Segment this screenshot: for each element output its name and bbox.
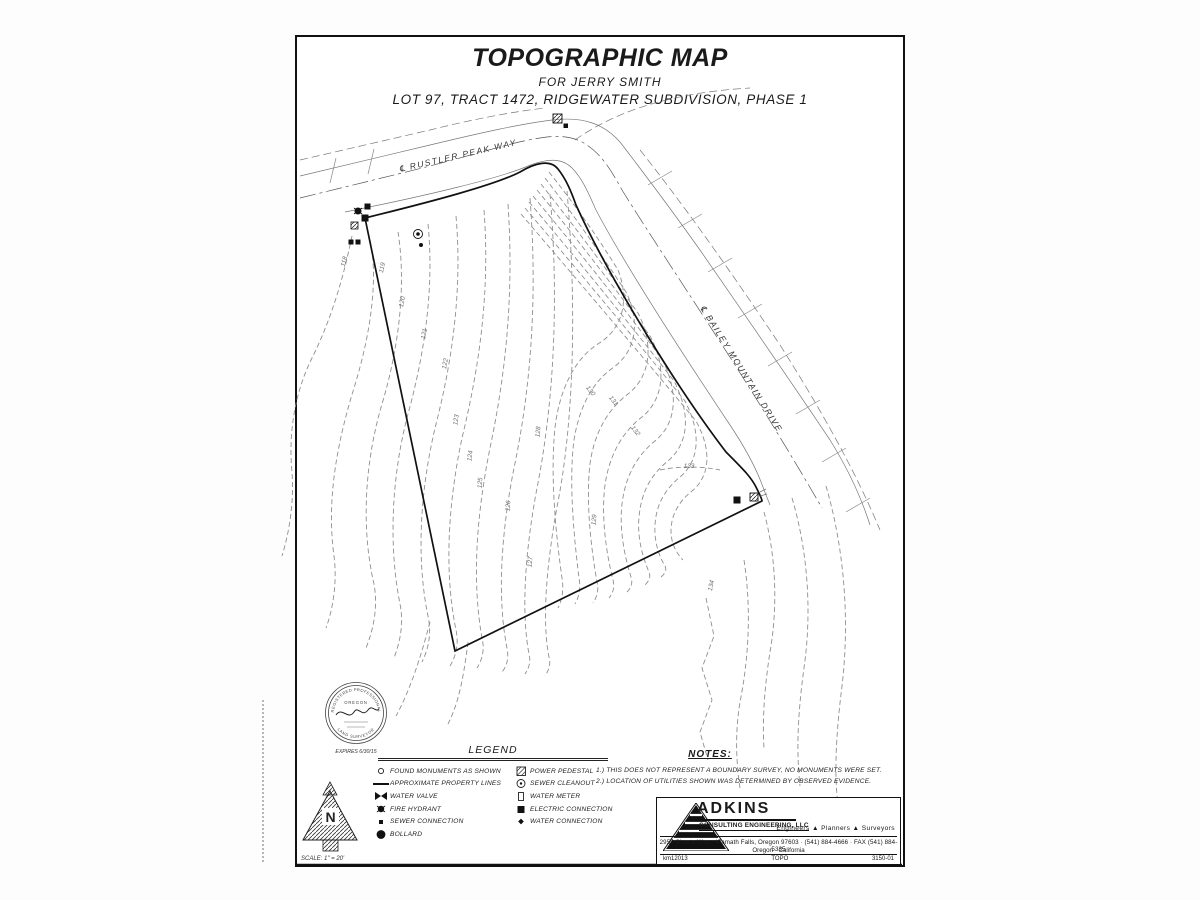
- road-far-edge: [300, 119, 870, 525]
- contour-label: 120: [398, 295, 407, 307]
- sewer-cleanout-icon: [512, 778, 530, 789]
- legend-item-water-connection: WATER CONNECTION: [512, 815, 614, 828]
- stamp-expires: EXPIRES 6/30/15: [335, 749, 376, 755]
- right-of-way-ticks: [330, 149, 870, 512]
- contour-label: 118: [340, 255, 350, 267]
- water-meter-icon: [512, 791, 530, 802]
- firm-sheet-type: TOPO: [771, 856, 788, 862]
- legend-item-electric-connection: ELECTRIC CONNECTION: [512, 803, 614, 816]
- firm-name: ADKINS: [695, 800, 796, 821]
- contour-label: 123: [452, 414, 460, 426]
- firm-job-row: km12013 TOPO 3150-01: [663, 856, 894, 862]
- firm-divider-2: [660, 854, 897, 855]
- notes-title: NOTES:: [596, 749, 824, 760]
- right-of-way-dashed-east: [640, 150, 880, 530]
- electric-connection-icon: [512, 804, 530, 815]
- note-1: 1.) THIS DOES NOT REPRESENT A BOUNDARY S…: [596, 765, 824, 776]
- contour-label: 134: [707, 579, 716, 591]
- property-boundary: [365, 163, 762, 651]
- contour-label: 119: [378, 262, 387, 274]
- sewer-cleanout-symbol: [414, 230, 423, 247]
- water-valve-icon: [372, 791, 390, 801]
- curve-return-dashed: [575, 88, 750, 140]
- legend-item-bollard: BOLLARD: [372, 828, 502, 841]
- legend-item-sewer-connection: SEWER CONNECTION: [372, 815, 502, 828]
- contour-label: 124: [466, 450, 474, 462]
- street-label-rustler: ℄ RUSTLER PEAK WAY: [398, 137, 518, 174]
- contour-labels: 118 119 120 121 122 123 124 125 126 127 …: [340, 255, 716, 591]
- topographic-map-sheet: TOPOGRAPHIC MAP FOR JERRY SMITH LOT 97, …: [0, 0, 1200, 900]
- stamp-signature: [336, 708, 379, 715]
- water-connection-icon: [362, 215, 368, 221]
- sewer-connection-icon: [372, 817, 390, 827]
- legend-item-water-meter: WATER METER: [512, 790, 614, 803]
- sewer-connection-icon: [349, 240, 353, 244]
- legend-title: LEGEND: [378, 744, 608, 761]
- contour-lines: [282, 172, 845, 806]
- electric-connection-icon: [365, 204, 370, 209]
- notes-block: NOTES: 1.) THIS DOES NOT REPRESENT A BOU…: [596, 749, 824, 787]
- right-of-way-dashed: [300, 108, 545, 160]
- power-pedestal-icon: [512, 766, 530, 777]
- legend-item-property-lines: APPROXIMATE PROPERTY LINES: [372, 778, 502, 791]
- legend-item-water-valve: WATER VALVE: [372, 790, 502, 803]
- contour-label: 128: [535, 426, 543, 438]
- power-pedestal-symbol-top: [553, 114, 568, 128]
- north-arrow: N SCALE: 1" = 20': [301, 782, 357, 862]
- firm-title-block: ADKINS CONSULTING ENGINEERING, LLC Engin…: [656, 797, 901, 865]
- legend-item-found-monuments: FOUND MONUMENTS AS SHOWN: [372, 765, 502, 778]
- power-pedestal-icon: [351, 222, 358, 229]
- fire-hydrant-icon: [372, 804, 390, 814]
- contour-label: 131: [607, 395, 619, 408]
- found-monument-icon: [750, 493, 758, 501]
- water-connection-icon: [512, 816, 530, 827]
- legend: LEGEND FOUND MONUMENTS AS SHOWN APPROXIM…: [372, 744, 614, 841]
- stamp-state: OREGON: [344, 700, 367, 705]
- legend-item-fire-hydrant: FIRE HYDRANT: [372, 803, 502, 816]
- contour-label: 125: [477, 477, 485, 489]
- firm-states: Oregon · California: [657, 847, 900, 854]
- firm-divider-1: [660, 836, 897, 837]
- note-2: 2.) LOCATION OF UTILITIES SHOWN WAS DETE…: [596, 776, 824, 787]
- contour-label: 133: [684, 463, 695, 470]
- contour-label: 127: [527, 556, 535, 568]
- firm-drawing-number: 3150-01: [872, 856, 894, 862]
- contour-label: 129: [591, 514, 599, 526]
- north-letter: N: [325, 809, 335, 825]
- firm-job-number: km12013: [663, 856, 688, 862]
- contour-label: 126: [505, 500, 513, 512]
- scale-label: SCALE: 1" = 20': [301, 856, 345, 862]
- electric-connection-icon: [734, 497, 740, 503]
- property-line-icon: [372, 779, 390, 789]
- road-centerline: [300, 136, 822, 508]
- contour-label: 121: [420, 327, 429, 339]
- road-near-edge: [345, 160, 770, 505]
- water-meter-icon: [356, 240, 360, 244]
- firm-disciplines: Engineers ▲ Planners ▲ Surveyors: [776, 825, 895, 832]
- contour-label: 132: [629, 425, 641, 438]
- street-label-bailey: ℄ BAILEY MOUNTAIN DRIVE: [698, 304, 785, 434]
- found-monument-icon: [372, 766, 390, 776]
- bollard-icon: [372, 829, 390, 840]
